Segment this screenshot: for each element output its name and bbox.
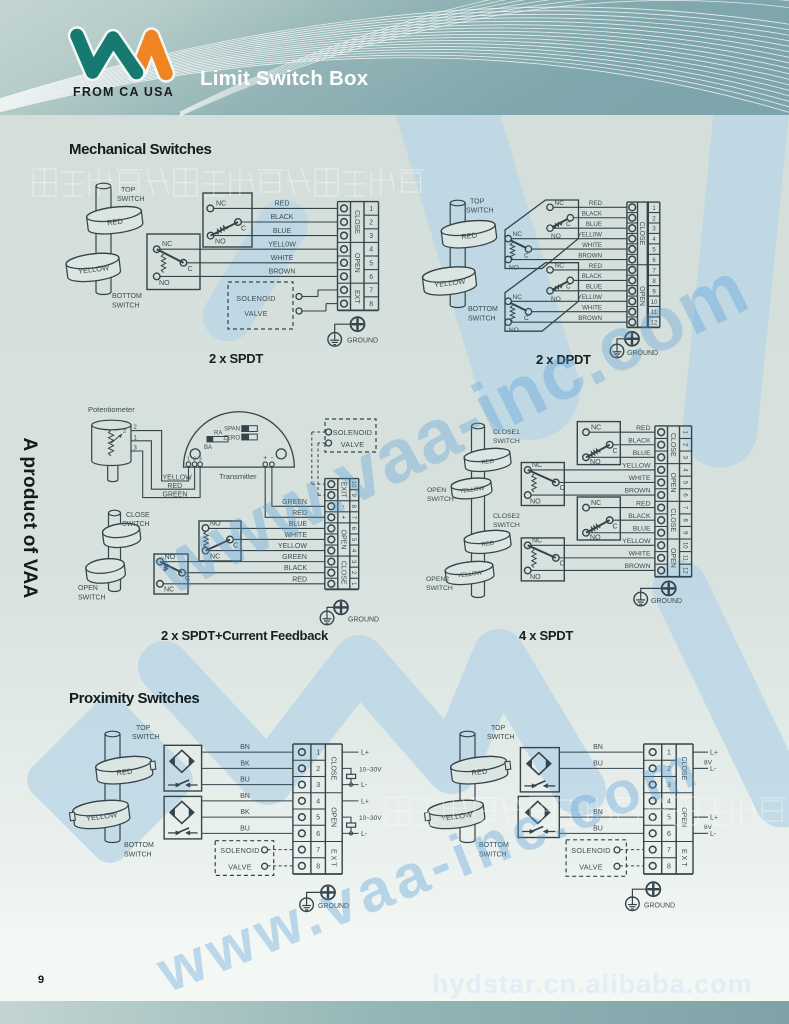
- svg-text:BA: BA: [204, 445, 212, 451]
- svg-text:2: 2: [316, 766, 320, 773]
- svg-text:BLUE: BLUE: [633, 450, 651, 457]
- svg-text:+: +: [263, 455, 267, 462]
- svg-text:BLACK: BLACK: [271, 214, 294, 221]
- svg-text:BN: BN: [240, 793, 250, 800]
- svg-text:BU: BU: [240, 777, 250, 784]
- svg-text:NC: NC: [162, 240, 172, 248]
- svg-text:OPEN: OPEN: [339, 530, 346, 550]
- svg-text:7: 7: [316, 847, 320, 854]
- svg-text:YELL0W: YELL0W: [578, 231, 603, 238]
- svg-text:BU: BU: [240, 825, 250, 832]
- svg-text:TOP: TOP: [491, 725, 506, 732]
- svg-text:OPEN2: OPEN2: [426, 576, 449, 583]
- svg-text:OPEN: OPEN: [353, 253, 360, 273]
- svg-text:VALVE: VALVE: [228, 863, 252, 872]
- svg-text:YELLOW: YELLOW: [622, 538, 651, 545]
- svg-text:BOTTOM: BOTTOM: [112, 293, 142, 300]
- svg-text:C: C: [560, 484, 565, 492]
- svg-text:SWITCH: SWITCH: [124, 852, 152, 859]
- svg-text:11: 11: [681, 555, 687, 562]
- svg-text:WHITE: WHITE: [629, 475, 651, 482]
- svg-text:RED: RED: [636, 500, 650, 507]
- svg-text:CLOSE: CLOSE: [638, 222, 645, 246]
- svg-text:Mechanical Switches: Mechanical Switches: [69, 141, 212, 158]
- svg-text:Potentiometer: Potentiometer: [88, 405, 135, 414]
- svg-text:CLOSE: CLOSE: [329, 757, 336, 781]
- svg-text:OPEN: OPEN: [427, 487, 446, 494]
- svg-text:BROWN: BROWN: [624, 563, 650, 570]
- svg-text:OPEN: OPEN: [669, 473, 676, 493]
- svg-text:2 x SPDT+Current Feedback: 2 x SPDT+Current Feedback: [161, 628, 329, 643]
- svg-text:GREEN: GREEN: [163, 491, 188, 498]
- svg-text:Proximity Switches: Proximity Switches: [69, 690, 199, 707]
- svg-text:SPAN: SPAN: [224, 427, 240, 433]
- svg-text:C: C: [560, 560, 565, 568]
- svg-text:L+: L+: [361, 750, 369, 757]
- svg-text:NO: NO: [530, 573, 541, 581]
- svg-text:BLACK: BLACK: [628, 513, 651, 520]
- svg-text:OPEN: OPEN: [329, 807, 336, 827]
- svg-text:C: C: [566, 283, 571, 290]
- svg-text:SWITCH: SWITCH: [132, 734, 160, 741]
- svg-text:7: 7: [369, 288, 373, 295]
- svg-text:YELLOW: YELLOW: [163, 475, 193, 482]
- svg-text:NC: NC: [532, 461, 542, 469]
- svg-text:9: 9: [38, 974, 44, 986]
- svg-text:YELL0W: YELL0W: [578, 294, 603, 301]
- svg-text:BN: BN: [240, 744, 250, 751]
- svg-text:BOTTOM: BOTTOM: [124, 842, 154, 849]
- svg-text:C: C: [566, 221, 571, 228]
- svg-text:SOLENOID: SOLENOID: [220, 846, 260, 855]
- svg-text:BROWN: BROWN: [624, 488, 650, 495]
- svg-text:C: C: [613, 523, 618, 531]
- svg-text:BROWN: BROWN: [269, 269, 296, 276]
- svg-text:2: 2: [123, 429, 126, 435]
- svg-text:8: 8: [369, 301, 373, 308]
- svg-text:2 x SPDT: 2 x SPDT: [209, 351, 263, 366]
- svg-text:A product of VAA: A product of VAA: [19, 437, 40, 598]
- svg-text:C: C: [241, 225, 246, 233]
- svg-text:C: C: [188, 265, 193, 273]
- svg-text:NO: NO: [590, 534, 601, 542]
- svg-text:C: C: [613, 447, 618, 455]
- svg-text:CLOSE2: CLOSE2: [493, 513, 520, 520]
- svg-text:SWITCH: SWITCH: [78, 595, 106, 602]
- svg-text:L-: L-: [710, 831, 717, 838]
- svg-text:BK: BK: [240, 809, 250, 816]
- svg-text:NO: NO: [530, 498, 541, 506]
- svg-text:SWITCH: SWITCH: [427, 496, 454, 503]
- svg-text:2: 2: [193, 457, 196, 463]
- svg-text:1: 1: [187, 457, 190, 463]
- svg-text:1: 1: [369, 206, 373, 213]
- svg-text:BLUE: BLUE: [633, 525, 651, 532]
- svg-text:CLOSE: CLOSE: [126, 512, 150, 519]
- svg-text:NC: NC: [216, 200, 226, 208]
- svg-text:SOLENOID: SOLENOID: [571, 846, 611, 855]
- svg-text:NO: NO: [590, 458, 601, 466]
- svg-text:NC: NC: [591, 499, 601, 507]
- svg-text:RA: RA: [214, 431, 222, 437]
- svg-text:3: 3: [199, 457, 202, 463]
- svg-text:TOP: TOP: [136, 725, 151, 732]
- svg-text:3: 3: [369, 233, 373, 240]
- svg-text:SWITCH: SWITCH: [122, 521, 150, 528]
- svg-text:10: 10: [681, 542, 687, 549]
- svg-text:GROUND: GROUND: [644, 903, 675, 910]
- svg-text:BLACK: BLACK: [582, 211, 603, 218]
- svg-text:NO: NO: [215, 238, 226, 246]
- svg-text:C: C: [524, 315, 529, 322]
- svg-text:NC: NC: [513, 231, 523, 238]
- svg-text:5: 5: [316, 815, 320, 822]
- svg-text:BLUE: BLUE: [586, 284, 602, 291]
- svg-text:SWITCH: SWITCH: [487, 734, 515, 741]
- svg-text:L+: L+: [361, 798, 369, 805]
- svg-text:E X T: E X T: [329, 849, 336, 867]
- svg-text:BLACK: BLACK: [628, 437, 651, 444]
- svg-text:6: 6: [369, 274, 373, 281]
- svg-text:BN: BN: [593, 744, 603, 751]
- svg-text:BLACK: BLACK: [284, 565, 307, 572]
- svg-text:CLOSE: CLOSE: [339, 561, 346, 585]
- svg-text:VALVE: VALVE: [244, 309, 268, 318]
- svg-text:10~30V: 10~30V: [359, 815, 382, 822]
- svg-text:2: 2: [369, 220, 373, 227]
- svg-text:BLUE: BLUE: [586, 221, 602, 228]
- svg-text:6: 6: [667, 831, 671, 838]
- svg-text:WHITE: WHITE: [629, 551, 651, 558]
- svg-text:C: C: [524, 253, 529, 260]
- svg-text:GROUND: GROUND: [347, 338, 378, 345]
- svg-text:4 x SPDT: 4 x SPDT: [519, 628, 573, 643]
- svg-text:WHITE: WHITE: [582, 242, 602, 249]
- svg-text:NO: NO: [509, 265, 519, 272]
- svg-text:YELLOW: YELLOW: [622, 463, 651, 470]
- svg-text:NC: NC: [532, 537, 542, 545]
- svg-text:GROUND: GROUND: [651, 598, 682, 605]
- svg-text:NC: NC: [555, 200, 565, 207]
- svg-text:NO: NO: [159, 279, 170, 287]
- svg-text:BROWN: BROWN: [578, 252, 602, 259]
- svg-text:CLOSE: CLOSE: [669, 433, 676, 457]
- svg-text:CLOSE: CLOSE: [669, 508, 676, 532]
- svg-text:EXT: EXT: [353, 290, 360, 304]
- svg-text:6: 6: [316, 831, 320, 838]
- svg-text:L-: L-: [361, 831, 368, 838]
- svg-text:BLACK: BLACK: [582, 273, 603, 280]
- svg-text:NC: NC: [555, 262, 565, 269]
- svg-text:RED: RED: [636, 425, 650, 432]
- svg-text:L+: L+: [710, 815, 718, 822]
- svg-text:L-: L-: [710, 766, 717, 773]
- svg-text:VALVE: VALVE: [579, 863, 603, 872]
- svg-text:4: 4: [369, 247, 373, 254]
- svg-text:BLUE: BLUE: [273, 228, 292, 235]
- svg-text:1: 1: [316, 750, 320, 757]
- svg-text:5: 5: [369, 260, 373, 267]
- svg-text:BK: BK: [240, 760, 250, 767]
- svg-text:L-: L-: [361, 782, 368, 789]
- svg-text:GROUND: GROUND: [348, 617, 379, 624]
- svg-text:SWITCH: SWITCH: [426, 585, 453, 592]
- svg-text:RED: RED: [589, 200, 603, 207]
- svg-text:8: 8: [667, 863, 671, 870]
- svg-text:NC: NC: [591, 424, 601, 432]
- svg-text:12: 12: [681, 567, 687, 574]
- svg-text:SWITCH: SWITCH: [493, 522, 520, 529]
- svg-text:FROM CA USA: FROM CA USA: [73, 85, 174, 99]
- svg-text:SWITCH: SWITCH: [117, 196, 145, 203]
- svg-text:RED: RED: [589, 263, 603, 270]
- svg-text:10~30V: 10~30V: [359, 767, 382, 774]
- svg-text:3: 3: [316, 782, 320, 789]
- svg-text:8V: 8V: [704, 760, 713, 767]
- svg-text:TOP: TOP: [121, 187, 136, 194]
- svg-text:8: 8: [316, 863, 320, 870]
- svg-text:L+: L+: [710, 750, 718, 757]
- svg-text:SOLENOID: SOLENOID: [236, 294, 276, 303]
- svg-text:E X T: E X T: [680, 849, 687, 867]
- svg-text:NC: NC: [513, 294, 523, 301]
- svg-text:OPEN: OPEN: [669, 548, 676, 568]
- svg-text:SWITCH: SWITCH: [468, 316, 496, 323]
- svg-text:WHITE: WHITE: [271, 255, 294, 262]
- svg-text:NO: NO: [509, 327, 519, 334]
- svg-text:RED: RED: [275, 201, 290, 208]
- svg-text:SWITCH: SWITCH: [466, 208, 494, 215]
- svg-text:BOTTOM: BOTTOM: [468, 306, 498, 313]
- svg-text:7: 7: [667, 847, 671, 854]
- svg-text:Limit Switch Box: Limit Switch Box: [200, 67, 369, 90]
- svg-text:RED: RED: [167, 483, 182, 490]
- svg-text:YELL0W: YELL0W: [268, 241, 296, 248]
- svg-text:hydstar.cn.alibaba.com: hydstar.cn.alibaba.com: [432, 969, 753, 999]
- svg-text:4: 4: [316, 798, 320, 805]
- svg-text:RED: RED: [292, 576, 307, 583]
- svg-text:OPEN: OPEN: [78, 585, 98, 592]
- svg-text:SWITCH: SWITCH: [112, 303, 140, 310]
- svg-text:CLOSE: CLOSE: [353, 210, 360, 234]
- svg-text:TOP: TOP: [470, 199, 485, 206]
